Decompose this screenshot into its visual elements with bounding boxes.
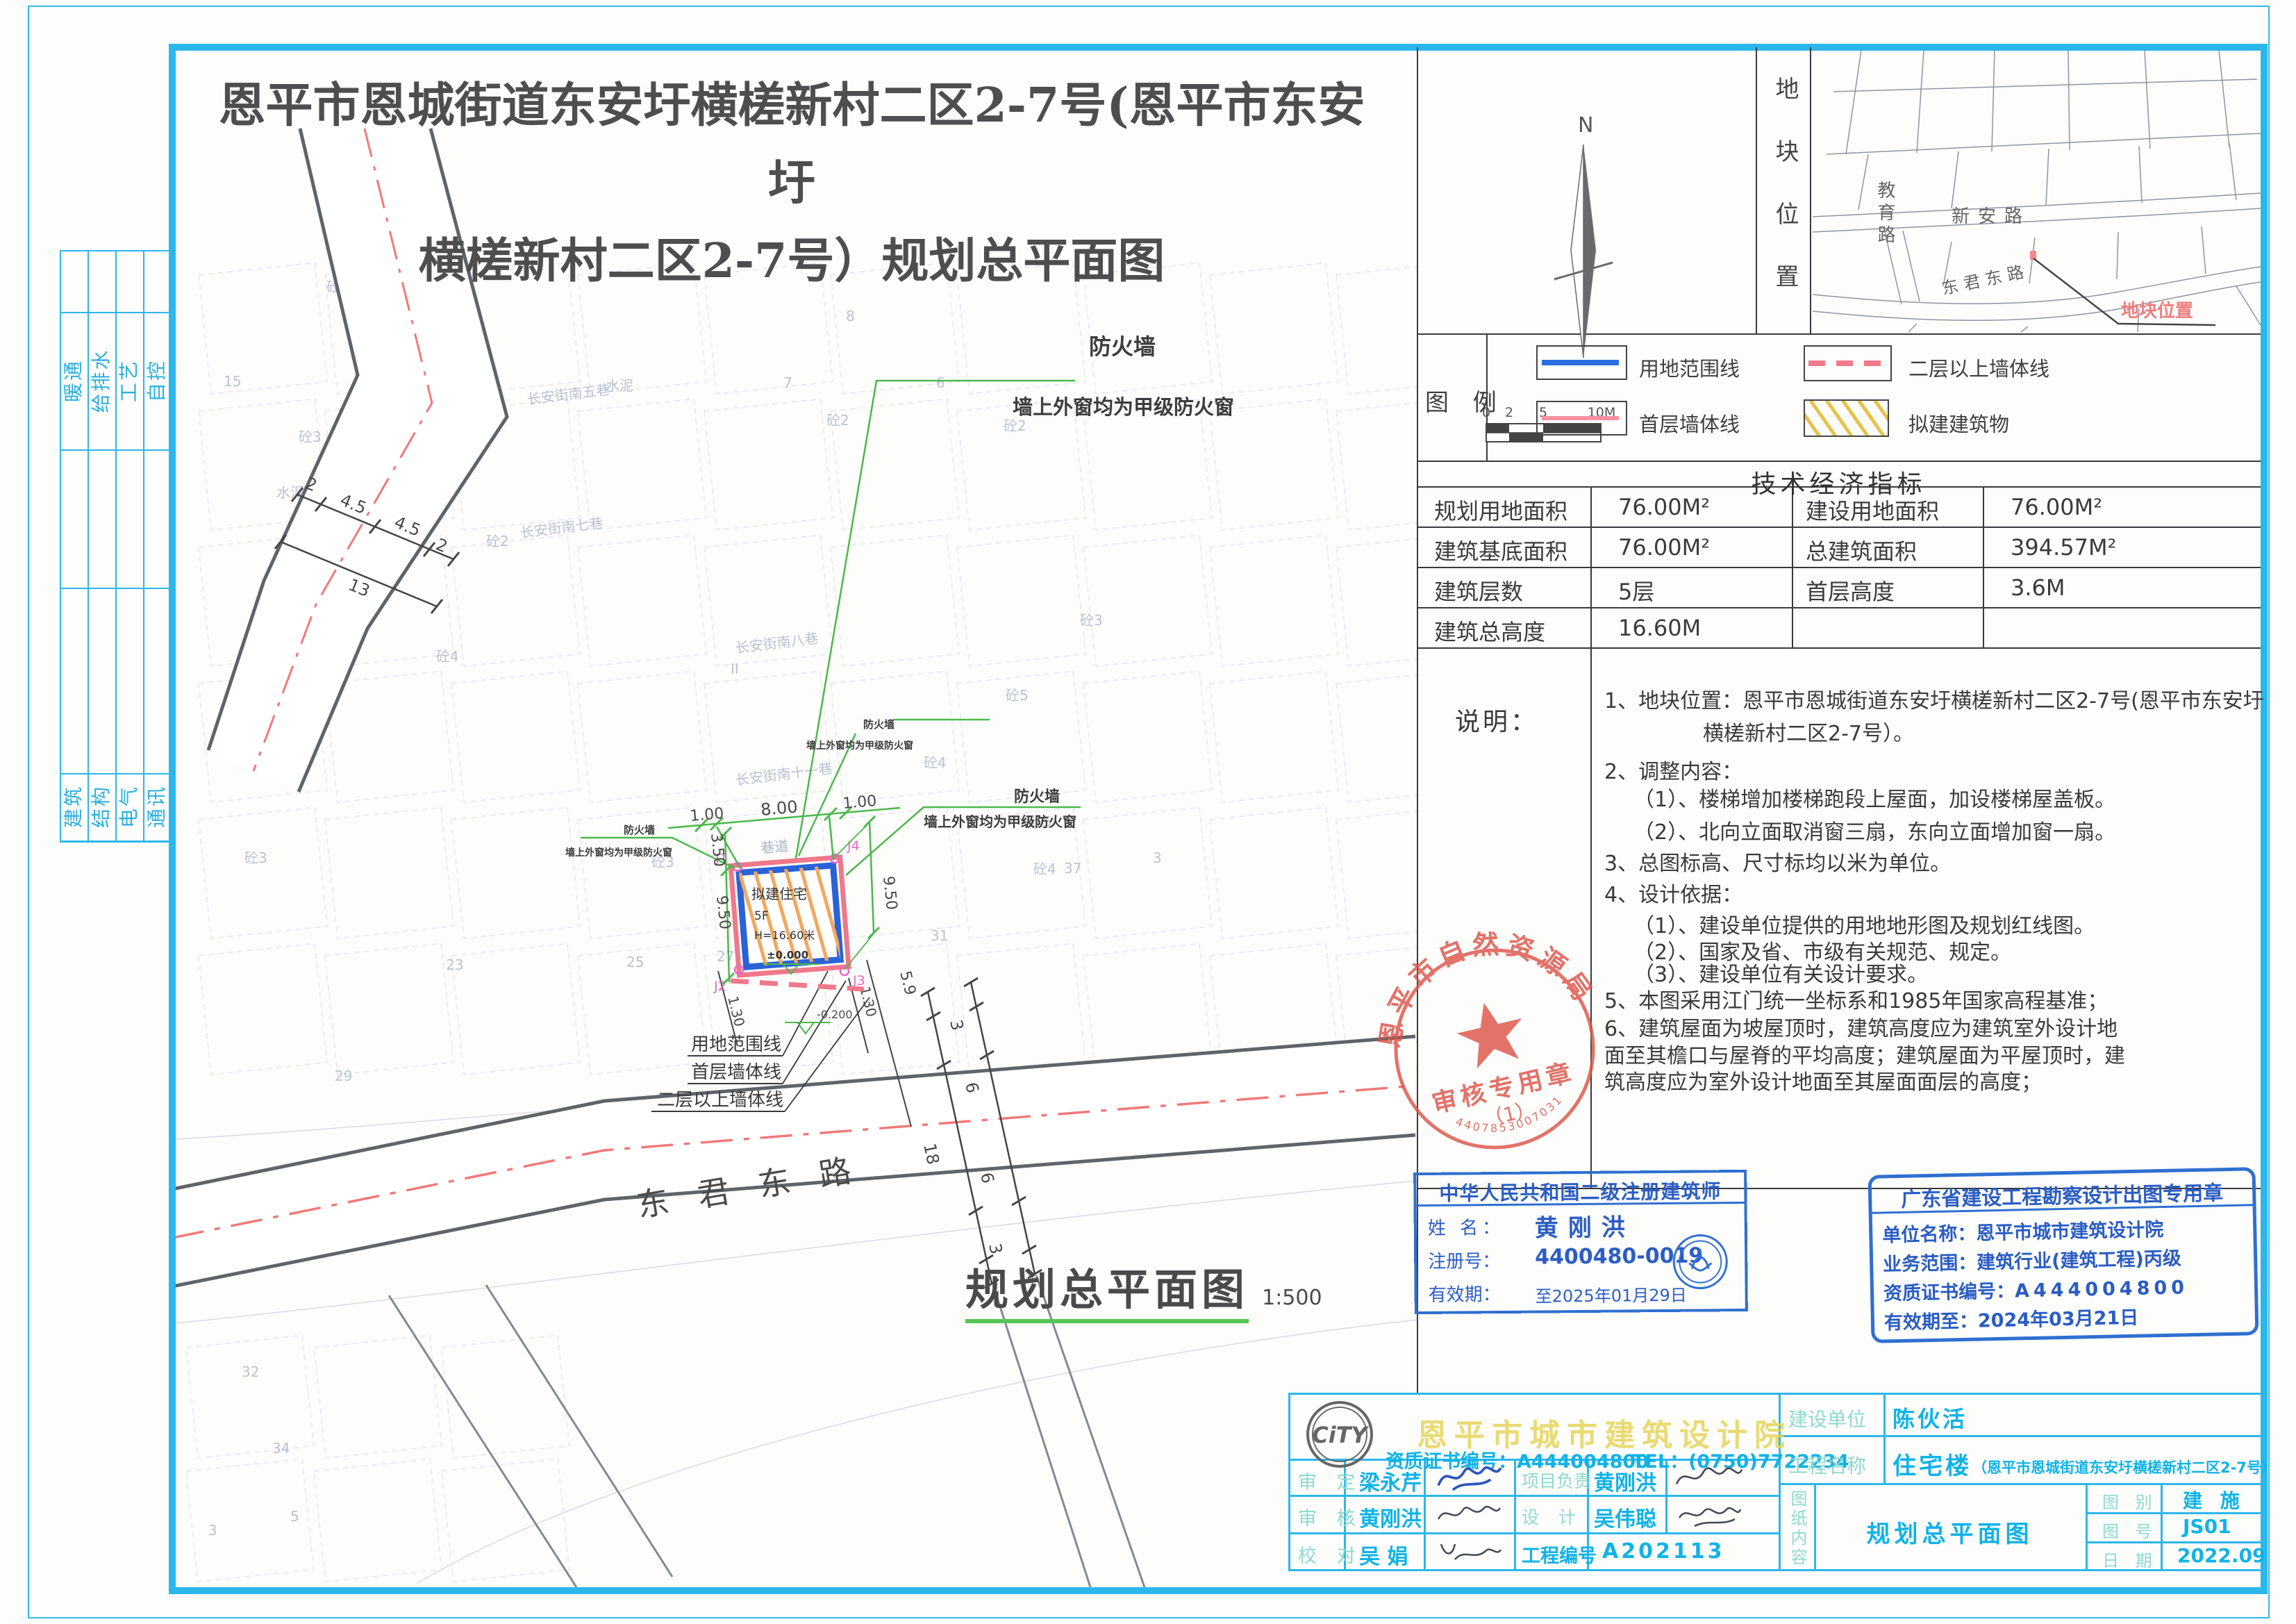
svg-text:首层墙体线: 首层墙体线: [691, 1062, 781, 1083]
building-level: ±0.000: [767, 949, 808, 961]
road-dim: 3: [946, 1018, 967, 1032]
building-floors: 5F: [754, 909, 769, 923]
title-block: CiTY 恩平市城市建筑设计院 资质证书编号：A444004800 TEL：(0…: [1288, 1393, 2264, 1571]
signoff-struct: 结构: [88, 772, 115, 841]
corner-j2: J2: [713, 979, 726, 994]
svg-text:东君东路: 东君东路: [1940, 261, 2031, 299]
background-label: 砼3: [299, 429, 322, 445]
background-label: 砼2: [1004, 417, 1026, 434]
legend-swatch-upper-wall: [1804, 345, 1892, 381]
signature: [1670, 1498, 1747, 1529]
drawing-title-line1: 恩平市恩城街道东安圩横槎新村二区2-7号(恩平市东安圩: [201, 67, 1382, 222]
location-panel-label: 地块位置: [1768, 76, 1802, 368]
svg-text:防火墙: 防火墙: [624, 824, 655, 836]
legend-swatch-proposed: [1804, 399, 1889, 437]
architect-stamp: 中华人民共和国二级注册建筑师 姓 名： 黄刚洪 注册号： 4400480-001…: [1413, 1170, 1748, 1314]
svg-text:1.00: 1.00: [689, 805, 724, 825]
signature: [1431, 1461, 1507, 1493]
corner-j3: J3: [852, 973, 865, 988]
svg-text:墙上外窗均为甲级防火窗: 墙上外窗均为甲级防火窗: [1013, 395, 1234, 419]
svg-text:1.00: 1.00: [842, 793, 877, 813]
plan-caption-text: 规划总平面图: [965, 1264, 1249, 1323]
svg-text:8.00: 8.00: [760, 797, 799, 820]
svg-text:N: N: [1578, 113, 1593, 138]
background-label: 8: [846, 308, 855, 324]
building-height: H=16.60米: [754, 929, 815, 942]
svg-text:3.50: 3.50: [707, 832, 728, 868]
background-label: 34: [272, 1440, 290, 1457]
dim-1-30: 1.30: [724, 994, 748, 1028]
site-marker-label: 地块位置: [2121, 300, 2193, 322]
note-line: （2）、北向立面取消窗三扇，东向立面增加窗一扇。: [1633, 815, 2115, 845]
note-line: 2、调整内容：: [1604, 754, 1742, 785]
background-label: 长安街南五巷: [526, 381, 611, 408]
company-logo: CiTY: [1301, 1398, 1379, 1473]
background-label: 3: [1153, 850, 1162, 866]
note-line: 6、建筑屋面为坡屋顶时，建筑高度应为建筑室外设计地: [1604, 1011, 2118, 1042]
location-map: 教育路 新安路 东君东路 地块位置: [1813, 50, 2261, 332]
background-label: 砼5: [1006, 687, 1029, 704]
background-label: 31: [931, 927, 948, 944]
svg-text:CiTY: CiTY: [1312, 1422, 1369, 1448]
legend-label-first-wall: 首层墙体线: [1639, 408, 1740, 438]
svg-text:二层以上墙体线: 二层以上墙体线: [657, 1090, 783, 1111]
background-label: 32: [242, 1364, 259, 1380]
corner-j4: J4: [847, 838, 860, 854]
note-line: 筑高度应为室外设计地面至其屋面面层的高度；: [1604, 1065, 2042, 1095]
background-label: 砼4: [1033, 861, 1056, 877]
background-label: 砼3: [1080, 612, 1103, 629]
signature: [1431, 1498, 1507, 1529]
legend-label-upper-wall: 二层以上墙体线: [1908, 353, 2049, 382]
note-line: 4、设计依据：: [1604, 877, 1742, 908]
sheet-content: 规划总平面图: [1814, 1515, 2086, 1549]
background-label: 长安街南十一巷: [735, 760, 833, 788]
elevation-marker: -0.200: [785, 1008, 853, 1034]
background-label: 6: [936, 374, 945, 391]
svg-text:2: 2: [1505, 405, 1513, 420]
road-dim: 6: [976, 1170, 998, 1185]
lane-label: 巷道: [760, 838, 789, 856]
building-label: 拟建住宅: [751, 886, 807, 902]
plan-caption: 规划总平面图 1:500: [965, 1254, 1322, 1317]
note-line: 横槎新村二区2-7号）。: [1703, 716, 1914, 747]
drawing-title-line2: 横槎新村二区2-7号）规划总平面图: [201, 222, 1382, 300]
svg-text:9.50: 9.50: [713, 895, 733, 930]
background-label: 3: [208, 1522, 217, 1539]
signoff-hvac: 暖通: [60, 329, 88, 433]
signature: [1670, 1461, 1747, 1493]
red-approval-stamp: 恩平市自然资源局 审核专用章 （1） 4407853007031: [1374, 928, 1615, 1170]
svg-text:防火墙: 防火墙: [1014, 788, 1060, 806]
note-line: 1、地块位置：恩平市恩城街道东安圩横槎新村二区2-7号(恩平市东安圩: [1604, 683, 2264, 714]
site-marker: [2030, 251, 2036, 260]
svg-text:用地范围线: 用地范围线: [691, 1034, 781, 1055]
drawing-title: 恩平市恩城街道东安圩横槎新村二区2-7号(恩平市东安圩 横槎新村二区2-7号）规…: [201, 67, 1382, 300]
note-line: 3、总图标高、尺寸标均以米为单位。: [1604, 846, 1951, 877]
background-label: 长安街南七巷: [519, 515, 604, 541]
background-label: 15: [224, 373, 241, 390]
xroad-dim: 2: [433, 535, 451, 557]
background-label: 27: [717, 948, 734, 965]
legend-swatch-first-wall: [1536, 401, 1627, 436]
background-label: 砼2: [826, 412, 849, 429]
legend-label-proposed: 拟建建筑物: [1908, 408, 2009, 438]
svg-text:防火墙: 防火墙: [863, 718, 895, 731]
notes-title: 说明：: [1455, 702, 1538, 738]
svg-text:防火墙: 防火墙: [1089, 333, 1156, 360]
legend-label-boundary: 用地范围线: [1639, 353, 1740, 382]
design-institute-stamp: 广东省建设工程勘察设计出图专用章 单位名称：恩平市城市建筑设计院 业务范围：建筑…: [1868, 1167, 2259, 1343]
background-label: 7: [783, 374, 792, 391]
signature: [1431, 1536, 1507, 1566]
svg-text:墙上外窗均为甲级防火窗: 墙上外窗均为甲级防火窗: [924, 813, 1076, 830]
fire-labels: 防火墙 墙上外窗均为甲级防火窗 防火墙 墙上外窗均为甲级防火窗 防火墙 墙上外窗…: [565, 333, 1234, 859]
background-label: 长安街南八巷: [735, 630, 820, 656]
background-label: 砼4: [436, 648, 459, 665]
stamp-star: [1451, 995, 1531, 1071]
north-arrow: N: [1535, 104, 1632, 368]
background-label: 25: [626, 954, 644, 970]
dim-5-9: 5.9: [896, 969, 919, 997]
background-label: 5: [290, 1508, 299, 1525]
legend-swatch-boundary: [1536, 345, 1627, 380]
svg-text:9.50: 9.50: [879, 875, 900, 911]
signoff-plumbing: 给排水: [88, 329, 115, 433]
sheet-content-label: 图纸内容: [1786, 1490, 1810, 1568]
svg-text:-0.200: -0.200: [817, 1008, 853, 1021]
signoff-arch: 建筑: [60, 772, 88, 841]
svg-text:墙上外窗均为甲级防火窗: 墙上外窗均为甲级防火窗: [565, 847, 672, 859]
background-label: II: [731, 661, 739, 677]
background-label: 砼2: [486, 533, 509, 549]
signoff-process: 工艺: [115, 329, 143, 433]
svg-text:墙上外窗均为甲级防火窗: 墙上外窗均为甲级防火窗: [806, 740, 913, 752]
background-label: 29: [335, 1068, 352, 1084]
signoff-comm: 通讯: [143, 772, 171, 841]
background-label: 砼3: [244, 850, 267, 866]
plan-caption-scale: 1:500: [1262, 1286, 1322, 1310]
svg-text:新安路: 新安路: [1952, 206, 2031, 227]
architect-emblem: [1671, 1232, 1730, 1291]
background-label: 砼4: [924, 754, 947, 771]
background-label: 23: [446, 956, 463, 973]
signoff-elec: 电气: [115, 772, 143, 841]
legend-title: 图 例: [1425, 383, 1505, 417]
note-line: （1）、楼梯增加楼梯跑段上屋面，加设楼梯屋盖板。: [1633, 782, 2115, 813]
drawing-sheet: 暖通 给排水 工艺 自控 建筑 结构 电气 通讯 砼4砼3水泥砼2水泥砼4长安街…: [0, 0, 2296, 1624]
signoff-controls: 自控: [143, 329, 171, 433]
background-label: 37: [1064, 860, 1081, 877]
svg-text:教育路: 教育路: [1874, 181, 1895, 247]
note-line: 5、本图采用江门统一坐标系和1985年国家高程基准；: [1604, 984, 2108, 1014]
